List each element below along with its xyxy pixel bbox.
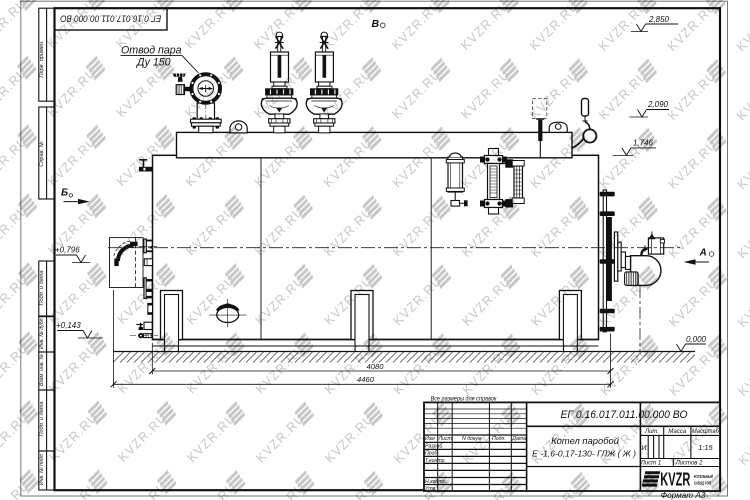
svg-text:KVZR.RU: KVZR.RU	[735, 275, 750, 330]
svg-text:KVZR.RU: KVZR.RU	[666, 137, 721, 192]
svg-text:В: В	[372, 18, 380, 30]
svg-text:КОТЕЛЬНЫЙ: КОТЕЛЬНЫЙ	[694, 472, 713, 479]
svg-text:Лит.: Лит.	[644, 429, 659, 435]
svg-text:KVZR.RU: KVZR.RU	[253, 342, 308, 397]
svg-text:А: А	[699, 248, 707, 259]
svg-text:KVZR.RU: KVZR.RU	[115, 341, 170, 396]
svg-text:KVZR.RU: KVZR.RU	[735, 206, 750, 261]
svg-text:KVZR.RU: KVZR.RU	[735, 137, 750, 192]
svg-text:KVZR.RU: KVZR.RU	[596, 68, 651, 123]
svg-text:KVZR.RU: KVZR.RU	[734, 69, 750, 124]
svg-text:KVZR.RU: KVZR.RU	[666, 275, 721, 330]
svg-text:Масса: Масса	[668, 429, 686, 435]
svg-text:Все размеры для справок: Все размеры для справок	[431, 394, 498, 402]
svg-text:Отвод пара: Отвод пара	[121, 45, 182, 57]
svg-text:Лист 1: Лист 1	[640, 461, 661, 467]
svg-text:KVZR.RU: KVZR.RU	[458, 67, 513, 122]
svg-text:Подп. и дата: Подп. и дата	[39, 401, 45, 436]
svg-text:KVZR.RU: KVZR.RU	[736, 413, 750, 468]
svg-text:Лист: Лист	[438, 436, 453, 442]
svg-text:0,000: 0,000	[686, 335, 707, 344]
svg-text:KVZR.RU: KVZR.RU	[45, 134, 100, 189]
svg-text:KVZR.RU: KVZR.RU	[597, 137, 652, 192]
svg-text:KVZR.RU: KVZR.RU	[45, 65, 100, 120]
svg-text:KVZR.RU: KVZR.RU	[667, 344, 722, 399]
svg-text:KVZR.RU: KVZR.RU	[527, 67, 582, 122]
svg-text:2,090: 2,090	[647, 100, 669, 109]
svg-text:KVZR.RU: KVZR.RU	[666, 206, 721, 261]
svg-text:KVZR.RU: KVZR.RU	[736, 482, 750, 500]
svg-text:Разраб.: Разраб.	[425, 444, 444, 450]
svg-text:4460: 4460	[357, 375, 375, 384]
svg-text:2,850: 2,850	[648, 15, 670, 24]
svg-text:Взам. инв. №: Взам. инв. №	[39, 354, 45, 386]
svg-text:KVZR.RU: KVZR.RU	[389, 67, 444, 122]
svg-text:Инв. № подл.: Инв. № подл.	[39, 453, 45, 485]
svg-text:Перв. примен.: Перв. примен.	[39, 40, 45, 77]
svg-text:Подп. и дата: Подп. и дата	[39, 270, 45, 305]
svg-text:Т.контр.: Т.контр.	[425, 458, 446, 464]
svg-text:KVZR.RU: KVZR.RU	[115, 410, 170, 465]
svg-text:Справ. №: Справ. №	[39, 141, 45, 166]
svg-text:Дата: Дата	[511, 436, 526, 442]
svg-text:KVZR.RU: KVZR.RU	[391, 343, 446, 398]
svg-text:KVZR.RU: KVZR.RU	[253, 411, 308, 466]
svg-text:KVZR.RU: KVZR.RU	[322, 411, 377, 466]
svg-text:KVZR.RU: KVZR.RU	[736, 344, 750, 399]
svg-text:KVZR.RU: KVZR.RU	[665, 68, 720, 123]
svg-text:KVZR.RU: KVZR.RU	[184, 410, 239, 465]
svg-text:Проб.: Проб.	[425, 451, 439, 457]
svg-text:KVZR.RU: KVZR.RU	[114, 65, 169, 120]
svg-text:Б: Б	[61, 188, 68, 199]
svg-text:1:15: 1:15	[698, 443, 713, 452]
svg-text:Инв. № дубл.: Инв. № дубл.	[39, 317, 45, 349]
svg-text:KVZR.RU: KVZR.RU	[184, 341, 239, 396]
svg-text:4080: 4080	[367, 362, 385, 371]
svg-text:KVZR: KVZR	[660, 469, 690, 489]
svg-text:KVZR.RU: KVZR.RU	[734, 0, 750, 54]
